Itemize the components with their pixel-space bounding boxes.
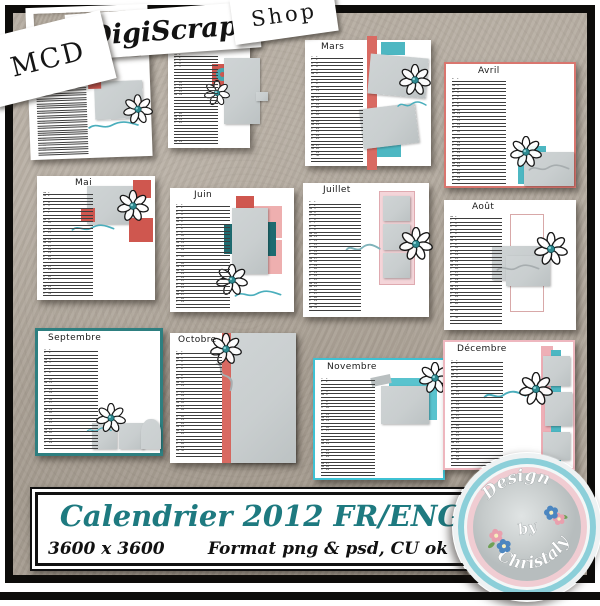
day-number: 9 bbox=[326, 404, 328, 406]
day-number: 3 bbox=[316, 63, 318, 65]
day-number: 10 bbox=[48, 222, 51, 224]
day-number: 26 bbox=[316, 142, 319, 144]
day-number: 1 bbox=[181, 204, 183, 206]
day-number: 12 bbox=[42, 105, 45, 108]
day-number: 28 bbox=[181, 298, 184, 300]
day-number: 19 bbox=[179, 110, 182, 112]
photo-placeholder bbox=[359, 103, 419, 150]
calendar-card-avril: AvrilD1L2Ma3Me4J5V6S7D8L9Ma10Me11J12V13S… bbox=[444, 62, 576, 188]
day-number: 18 bbox=[455, 275, 458, 277]
day-number: 19 bbox=[326, 437, 329, 439]
day-number: 22 bbox=[43, 130, 46, 133]
day-number: 29 bbox=[43, 147, 46, 150]
day-number: 1 bbox=[455, 216, 457, 218]
day-number: 27 bbox=[179, 135, 182, 137]
month-title: Mai bbox=[75, 178, 92, 188]
day-number: 15 bbox=[181, 253, 184, 255]
day-number: 19 bbox=[49, 409, 52, 411]
day-number: 26 bbox=[457, 166, 460, 169]
day-number: 15 bbox=[48, 239, 51, 241]
day-number: 1 bbox=[49, 349, 51, 351]
day-number: 16 bbox=[456, 411, 459, 413]
day-number: 19 bbox=[42, 123, 45, 126]
day-number: 12 bbox=[455, 254, 458, 256]
day-number: 18 bbox=[48, 249, 51, 251]
day-number: 25 bbox=[316, 138, 319, 140]
day-number: 9 bbox=[42, 98, 44, 101]
day-list: S1D2L3Ma4Me5J6V7S8D9L10Ma11Me12J13V14S15… bbox=[451, 360, 503, 466]
day-list: Ma1Me2J3V4S5D6L7Ma8Me9J10V11S12D13L14Ma1… bbox=[43, 192, 93, 296]
day-number: 27 bbox=[48, 279, 51, 281]
flower-doodle-icon bbox=[399, 64, 431, 96]
month-title: Mars bbox=[321, 42, 344, 52]
day-number: 7 bbox=[457, 99, 459, 102]
day-number: 8 bbox=[316, 80, 318, 82]
day-number: 28 bbox=[314, 297, 317, 300]
day-number: 21 bbox=[49, 416, 52, 418]
day-number: 8 bbox=[48, 216, 50, 218]
day-number: 12 bbox=[48, 229, 51, 231]
day-number: 23 bbox=[179, 122, 182, 124]
day-number: 2 bbox=[455, 219, 457, 221]
day-number: 16 bbox=[326, 427, 329, 429]
day-number: 2 bbox=[316, 59, 318, 61]
day-number: 14 bbox=[42, 110, 45, 113]
flower-doodle-icon bbox=[117, 190, 149, 222]
day-number: 20 bbox=[456, 425, 459, 427]
day-number: 16 bbox=[316, 107, 319, 109]
day-number: 26 bbox=[179, 132, 182, 134]
day-number: 13 bbox=[326, 417, 329, 419]
day-number: 31 bbox=[316, 159, 319, 161]
day-number: 12 bbox=[316, 94, 319, 96]
day-number: 28 bbox=[48, 283, 51, 285]
day-number: 4 bbox=[181, 214, 183, 216]
day-number: 30 bbox=[314, 304, 317, 307]
day-number: 22 bbox=[455, 289, 458, 291]
day-number: 15 bbox=[457, 127, 460, 130]
day-number: 11 bbox=[455, 251, 458, 253]
flower-doodle-icon bbox=[534, 232, 568, 266]
day-number: 6 bbox=[48, 209, 50, 211]
day-number: 6 bbox=[314, 219, 316, 222]
day-number: 5 bbox=[314, 215, 316, 218]
day-number: 15 bbox=[326, 424, 329, 426]
day-number: 25 bbox=[326, 456, 329, 458]
day-number: 24 bbox=[326, 453, 329, 455]
teal-rectangle bbox=[381, 42, 405, 55]
day-number: 23 bbox=[48, 266, 51, 268]
day-number: 20 bbox=[314, 268, 317, 271]
day-number: 7 bbox=[181, 372, 183, 374]
day-number: 21 bbox=[457, 149, 460, 152]
day-number: 23 bbox=[456, 435, 459, 437]
day-number: 19 bbox=[455, 279, 458, 281]
day-number: 4 bbox=[179, 63, 181, 65]
day-number: 29 bbox=[48, 286, 51, 288]
day-number: 26 bbox=[456, 446, 459, 448]
day-number: 20 bbox=[48, 256, 51, 258]
day-number: 1 bbox=[48, 192, 50, 194]
day-number: 18 bbox=[457, 138, 460, 141]
day-number: 4 bbox=[456, 370, 458, 372]
day-number: 22 bbox=[181, 423, 184, 425]
month-title: Octobre bbox=[178, 335, 217, 345]
day-number: 12 bbox=[179, 88, 182, 90]
day-row: Me29 bbox=[174, 141, 218, 144]
day-number: 30 bbox=[326, 473, 329, 475]
day-number: 20 bbox=[181, 270, 184, 272]
day-number: 21 bbox=[181, 273, 184, 275]
day-number: 2 bbox=[456, 363, 458, 365]
day-number: 13 bbox=[457, 120, 460, 123]
day-number: 1 bbox=[326, 378, 328, 380]
day-number: 26 bbox=[314, 290, 317, 293]
day-number: 10 bbox=[179, 82, 182, 84]
month-title: Novembre bbox=[327, 362, 377, 372]
shop-strip-label: Shop bbox=[250, 0, 319, 31]
day-number: 31 bbox=[48, 293, 51, 295]
day-number: 15 bbox=[42, 113, 45, 116]
day-number: 13 bbox=[456, 401, 459, 403]
day-number: 17 bbox=[314, 258, 317, 261]
day-number: 1 bbox=[314, 201, 316, 204]
day-number: 28 bbox=[43, 145, 46, 148]
day-list: V1S2D3L4Ma5Me6J7V8S9D10L11Ma12Me13J14V15… bbox=[176, 204, 230, 308]
day-number: 25 bbox=[48, 273, 51, 275]
day-number: 30 bbox=[181, 305, 184, 307]
day-number: 8 bbox=[455, 240, 457, 242]
day-number: 3 bbox=[49, 356, 51, 358]
day-number: 12 bbox=[181, 389, 184, 391]
day-number: 13 bbox=[179, 91, 182, 93]
day-number: 3 bbox=[48, 199, 50, 201]
month-title: Août bbox=[472, 202, 494, 212]
day-number: 3 bbox=[179, 60, 181, 62]
day-number: 29 bbox=[326, 469, 329, 471]
day-row: D30 bbox=[44, 446, 98, 449]
day-number: 15 bbox=[49, 396, 52, 398]
day-number: 7 bbox=[181, 225, 183, 227]
day-number: 29 bbox=[179, 141, 182, 143]
day-number: 22 bbox=[48, 263, 51, 265]
day-number: 7 bbox=[455, 237, 457, 239]
day-number: 18 bbox=[179, 107, 182, 109]
day-number: 24 bbox=[455, 296, 458, 298]
day-number: 21 bbox=[316, 124, 319, 126]
day-number: 19 bbox=[181, 266, 184, 268]
day-number: 13 bbox=[49, 389, 52, 391]
day-number: 8 bbox=[314, 226, 316, 229]
day-number: 16 bbox=[455, 268, 458, 270]
day-number: 3 bbox=[326, 385, 328, 387]
day-number: 30 bbox=[455, 317, 458, 319]
month-title: Avril bbox=[478, 66, 500, 76]
day-number: 17 bbox=[457, 135, 460, 138]
day-number: 10 bbox=[181, 235, 184, 237]
day-number: 5 bbox=[456, 374, 458, 376]
day-number: 14 bbox=[179, 94, 182, 96]
day-row: Ma31 bbox=[38, 152, 88, 156]
day-number: 8 bbox=[457, 103, 459, 106]
day-number: 21 bbox=[326, 443, 329, 445]
day-number: 6 bbox=[181, 368, 183, 370]
day-number: 9 bbox=[179, 79, 181, 81]
day-number: 28 bbox=[179, 138, 182, 140]
day-row: J31 bbox=[43, 293, 93, 296]
day-number: 18 bbox=[326, 434, 329, 436]
day-number: 6 bbox=[455, 233, 457, 235]
day-number: 25 bbox=[455, 300, 458, 302]
day-number: 28 bbox=[326, 466, 329, 468]
day-number: 14 bbox=[455, 261, 458, 263]
day-row: V30 bbox=[321, 473, 375, 476]
day-number: 1 bbox=[179, 54, 181, 56]
day-number: 17 bbox=[181, 260, 184, 262]
day-number: 11 bbox=[42, 103, 45, 106]
day-number: 15 bbox=[181, 399, 184, 401]
day-number: 21 bbox=[181, 419, 184, 421]
day-number: 11 bbox=[456, 394, 459, 396]
day-number: 24 bbox=[181, 284, 184, 286]
day-number: 11 bbox=[181, 385, 184, 387]
flower-doodle-icon bbox=[510, 136, 542, 168]
day-number: 15 bbox=[455, 265, 458, 267]
day-list: L1Ma2Me3J4V5S6D7L8Ma9Me10J11V12S13D14L15… bbox=[176, 351, 222, 457]
day-number: 20 bbox=[457, 145, 460, 148]
day-number: 9 bbox=[48, 219, 50, 221]
day-number: 28 bbox=[49, 439, 52, 441]
calendar-card-octobre: OctobreL1Ma2Me3J4V5S6D7L8Ma9Me10J11V12S1… bbox=[170, 333, 296, 463]
day-list: S1D2L3Ma4Me5J6V7S8D9L10Ma11Me12J13V14S15… bbox=[44, 349, 98, 449]
day-number: 11 bbox=[179, 85, 182, 87]
designer-badge: Design by Christaly bbox=[452, 452, 600, 602]
day-number: 4 bbox=[314, 212, 316, 215]
day-number: 11 bbox=[48, 226, 51, 228]
day-number: 18 bbox=[316, 114, 319, 116]
day-number: 19 bbox=[316, 118, 319, 120]
day-number: 2 bbox=[181, 354, 183, 356]
day-number: 12 bbox=[326, 414, 329, 416]
day-number: 25 bbox=[49, 429, 52, 431]
day-number: 18 bbox=[181, 409, 184, 411]
day-number: 7 bbox=[316, 77, 318, 79]
day-number: 24 bbox=[48, 269, 51, 271]
day-list: Me1J2V3S4D5L6Ma7Me8J9V10S11D12L13Ma14Me1… bbox=[174, 54, 218, 144]
day-number: 24 bbox=[43, 135, 46, 138]
day-number: 9 bbox=[455, 244, 457, 246]
day-number: 6 bbox=[457, 96, 459, 99]
day-number: 27 bbox=[43, 142, 46, 145]
day-number: 27 bbox=[316, 145, 319, 147]
day-number: 9 bbox=[316, 83, 318, 85]
day-number: 12 bbox=[181, 242, 184, 244]
day-number: 7 bbox=[179, 73, 181, 75]
day-number: 22 bbox=[49, 419, 52, 421]
calendar-card-decembre: DécembreS1D2L3Ma4Me5J6V7S8D9L10Ma11Me12J… bbox=[443, 340, 575, 470]
day-number: 8 bbox=[456, 384, 458, 386]
day-number: 16 bbox=[457, 131, 460, 134]
day-number: 30 bbox=[43, 150, 46, 153]
day-number: 17 bbox=[181, 406, 184, 408]
day-number: 18 bbox=[181, 263, 184, 265]
day-number: 5 bbox=[48, 205, 50, 207]
day-number: 16 bbox=[49, 399, 52, 401]
photo-placeholder bbox=[256, 92, 268, 101]
day-number: 12 bbox=[457, 117, 460, 120]
day-number: 9 bbox=[457, 106, 459, 109]
day-number: 6 bbox=[181, 221, 183, 223]
day-number: 17 bbox=[48, 246, 51, 248]
day-number: 19 bbox=[456, 422, 459, 424]
day-number: 6 bbox=[316, 73, 318, 75]
day-number: 5 bbox=[179, 66, 181, 68]
day-number: 3 bbox=[455, 223, 457, 225]
day-number: 17 bbox=[42, 118, 45, 121]
day-number: 27 bbox=[455, 307, 458, 309]
day-number: 18 bbox=[314, 261, 317, 264]
day-number: 14 bbox=[457, 124, 460, 127]
day-number: 29 bbox=[455, 314, 458, 316]
day-row: S31 bbox=[311, 159, 363, 162]
day-number: 27 bbox=[326, 463, 329, 465]
day-number: 9 bbox=[181, 232, 183, 234]
day-number: 21 bbox=[43, 127, 46, 130]
day-number: 13 bbox=[181, 392, 184, 394]
day-number: 24 bbox=[179, 126, 182, 128]
day-number: 1 bbox=[457, 78, 459, 81]
day-number: 16 bbox=[179, 101, 182, 103]
day-number: 10 bbox=[316, 87, 319, 89]
mcd-slip-label: MCD bbox=[7, 35, 88, 83]
day-number: 5 bbox=[455, 230, 457, 232]
day-number: 25 bbox=[181, 287, 184, 289]
day-number: 25 bbox=[43, 137, 46, 140]
day-number: 12 bbox=[456, 398, 459, 400]
day-row: L30 bbox=[452, 180, 506, 184]
day-number: 18 bbox=[456, 418, 459, 420]
day-number: 20 bbox=[326, 440, 329, 442]
flower-doodle-icon bbox=[96, 403, 126, 433]
month-title: Décembre bbox=[457, 344, 507, 354]
month-title: Juillet bbox=[323, 185, 351, 195]
photo-placeholder bbox=[383, 196, 410, 221]
day-number: 25 bbox=[314, 286, 317, 289]
day-number: 2 bbox=[314, 205, 316, 208]
day-number: 4 bbox=[316, 66, 318, 68]
calendar-card-mai: MaiMa1Me2J3V4S5D6L7Ma8Me9J10V11S12D13L14… bbox=[37, 176, 155, 300]
day-number: 30 bbox=[316, 155, 319, 157]
day-number: 14 bbox=[181, 249, 184, 251]
day-number: 17 bbox=[326, 430, 329, 432]
day-number: 11 bbox=[49, 382, 52, 384]
day-number: 26 bbox=[455, 303, 458, 305]
day-number: 12 bbox=[49, 386, 52, 388]
day-number: 5 bbox=[181, 218, 183, 220]
day-number: 11 bbox=[457, 113, 460, 116]
day-number: 13 bbox=[316, 97, 319, 99]
day-number: 7 bbox=[326, 398, 328, 400]
day-number: 13 bbox=[181, 246, 184, 248]
day-number: 19 bbox=[457, 142, 460, 145]
day-number: 23 bbox=[455, 293, 458, 295]
day-number: 17 bbox=[179, 104, 182, 106]
day-number: 15 bbox=[456, 408, 459, 410]
day-number: 23 bbox=[457, 156, 460, 159]
day-number: 3 bbox=[181, 211, 183, 213]
digiscrap-banner-label: DigiScrap bbox=[87, 10, 238, 51]
day-number: 17 bbox=[455, 272, 458, 274]
day-number: 10 bbox=[49, 379, 52, 381]
day-number: 29 bbox=[457, 177, 460, 180]
day-number: 30 bbox=[181, 450, 184, 452]
day-number: 30 bbox=[457, 180, 460, 183]
day-number: 9 bbox=[456, 387, 458, 389]
day-number: 6 bbox=[179, 70, 181, 72]
day-number: 14 bbox=[49, 392, 52, 394]
day-number: 24 bbox=[314, 283, 317, 286]
day-number: 30 bbox=[48, 289, 51, 291]
day-number: 9 bbox=[314, 229, 316, 232]
day-list: J1V2S3D4L5Ma6Me7J8V9S10D11L12Ma13Me14J15… bbox=[311, 56, 363, 162]
day-number: 29 bbox=[316, 152, 319, 154]
day-number: 19 bbox=[48, 252, 51, 254]
day-number: 14 bbox=[326, 420, 329, 422]
day-number: 23 bbox=[314, 279, 317, 282]
day-number: 24 bbox=[316, 135, 319, 137]
day-number: 15 bbox=[314, 251, 317, 254]
day-number: 17 bbox=[316, 111, 319, 113]
day-list: J1V2S3D4L5Ma6Me7J8V9S10D11L12Ma13Me14J15… bbox=[321, 378, 375, 476]
day-number: 6 bbox=[326, 394, 328, 396]
day-number: 22 bbox=[179, 119, 182, 121]
day-number: 29 bbox=[49, 442, 52, 444]
month-title: Juin bbox=[194, 190, 212, 200]
day-number: 8 bbox=[181, 375, 183, 377]
day-number: 8 bbox=[49, 372, 51, 374]
day-number: 22 bbox=[181, 277, 184, 279]
day-number: 19 bbox=[181, 413, 184, 415]
day-number: 2 bbox=[181, 207, 183, 209]
day-number: 25 bbox=[181, 433, 184, 435]
day-number: 2 bbox=[179, 57, 181, 59]
day-number: 31 bbox=[43, 152, 46, 155]
day-number: 4 bbox=[49, 359, 51, 361]
day-number: 10 bbox=[455, 247, 458, 249]
day-number: 10 bbox=[326, 407, 329, 409]
day-row: V31 bbox=[450, 321, 502, 324]
day-number: 21 bbox=[456, 428, 459, 430]
photo-placeholder bbox=[141, 419, 161, 449]
day-number: 10 bbox=[314, 233, 317, 236]
day-number: 28 bbox=[455, 310, 458, 312]
day-number: 13 bbox=[48, 232, 51, 234]
day-number: 21 bbox=[48, 259, 51, 261]
day-number: 15 bbox=[179, 98, 182, 100]
calendar-card-aout: AoûtMe1J2V3S4D5L6Ma7Me8J9V10S11D12L13Ma1… bbox=[444, 200, 576, 330]
day-number: 11 bbox=[314, 236, 317, 239]
day-number: 27 bbox=[457, 170, 460, 173]
day-number: 2 bbox=[48, 195, 50, 197]
day-number: 18 bbox=[49, 406, 52, 408]
day-number: 21 bbox=[179, 116, 182, 118]
day-number: 23 bbox=[181, 280, 184, 282]
day-number: 22 bbox=[457, 152, 460, 155]
day-list: Me1J2V3S4D5L6Ma7Me8J9V10S11D12L13Ma14Me1… bbox=[450, 216, 502, 324]
day-row: Me31 bbox=[176, 454, 222, 457]
day-number: 21 bbox=[455, 286, 458, 288]
day-number: 13 bbox=[42, 108, 45, 111]
